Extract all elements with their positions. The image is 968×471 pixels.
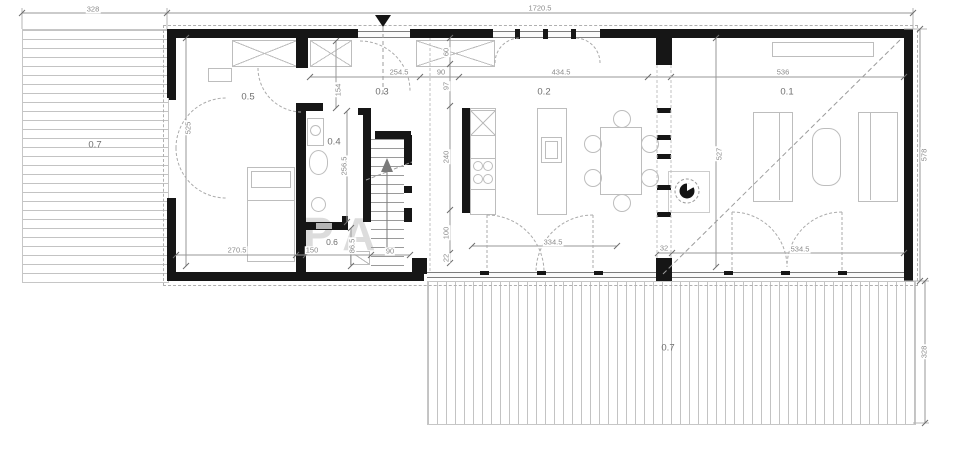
- dim-deck-bottom-depth: 328: [920, 345, 928, 360]
- entry-door-arc: [360, 41, 410, 91]
- fireplace-icon: [675, 179, 699, 203]
- dim-stair-width: 90: [385, 247, 395, 255]
- dim-kitchen-door: 334.5: [543, 238, 564, 246]
- floor-plan: PA: [0, 0, 968, 471]
- kitchen-door-arc: [487, 215, 593, 272]
- kitchen-door-leaf: [487, 215, 593, 270]
- room-label-kitchen: 0.2: [537, 87, 550, 98]
- door-arcs: [176, 38, 842, 272]
- dim-22: 22: [442, 253, 450, 263]
- dim-bath-depth: 256.5: [340, 156, 348, 177]
- dim-bedroom-depth: 525: [184, 121, 192, 136]
- room-label-storage: 0.6: [326, 237, 338, 247]
- dim-bedroom-width: 270.5: [227, 246, 248, 254]
- dim-deck-left-width: 328: [86, 5, 101, 13]
- dim-97: 97: [442, 81, 450, 91]
- dim-overall-width: 1720.5: [528, 4, 553, 12]
- room-label-deck-left: 0.7: [88, 140, 101, 151]
- dim-hall-door: 154: [334, 83, 342, 98]
- dim-hall-width: 254.5: [389, 68, 410, 76]
- dim-kitchen-depth: 240: [442, 150, 450, 165]
- room-label-living: 0.1: [780, 87, 793, 98]
- dim-living-door: 534.5: [790, 245, 811, 253]
- dimension-lines: [22, 8, 929, 423]
- annotation-overlay: [0, 0, 968, 471]
- dim-storage-depth: 86.5: [348, 238, 356, 255]
- dim-column-width: 32: [659, 244, 669, 252]
- dim-wardrobe-depth: 60: [442, 47, 450, 57]
- entry-arrow-icon: [375, 15, 391, 27]
- dim-storage-width: 150: [305, 246, 320, 254]
- dim-living-depth: 527: [715, 147, 723, 162]
- room-label-hall: 0.3: [375, 87, 388, 98]
- dim-living-width: 536: [776, 68, 791, 76]
- dim-kitchen-width: 434.5: [551, 68, 572, 76]
- room-label-bedroom: 0.5: [241, 92, 254, 103]
- dimension-ticks: [19, 10, 928, 426]
- room-label-deck-bottom: 0.7: [661, 343, 674, 354]
- room-label-bath: 0.4: [327, 137, 340, 148]
- bedroom-door-arc: [258, 68, 302, 112]
- stair-arrow: [381, 158, 393, 252]
- deck-door-arc-lower: [176, 148, 226, 198]
- living-door-arc: [732, 212, 842, 267]
- window-arc: [495, 38, 600, 63]
- dim-overall-depth: 578: [920, 148, 928, 163]
- dim-100: 100: [442, 226, 450, 241]
- dim-passage-width: 90: [436, 68, 446, 76]
